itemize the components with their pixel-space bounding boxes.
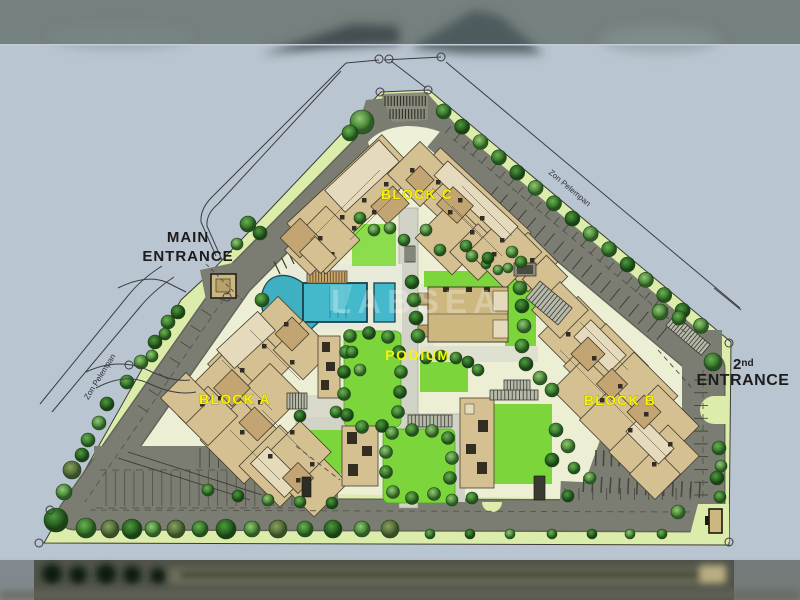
svg-text:PODIUM: PODIUM: [385, 347, 451, 363]
svg-text:LABSEA: LABSEA: [331, 283, 503, 320]
svg-text:ENTRANCE: ENTRANCE: [697, 372, 790, 389]
svg-text:BLOCK A: BLOCK A: [199, 391, 271, 407]
svg-text:MAIN: MAIN: [167, 229, 209, 246]
svg-text:ENTRANCE: ENTRANCE: [142, 248, 233, 265]
svg-text:BLOCK B: BLOCK B: [584, 392, 656, 408]
svg-text:BLOCK C: BLOCK C: [381, 186, 453, 202]
